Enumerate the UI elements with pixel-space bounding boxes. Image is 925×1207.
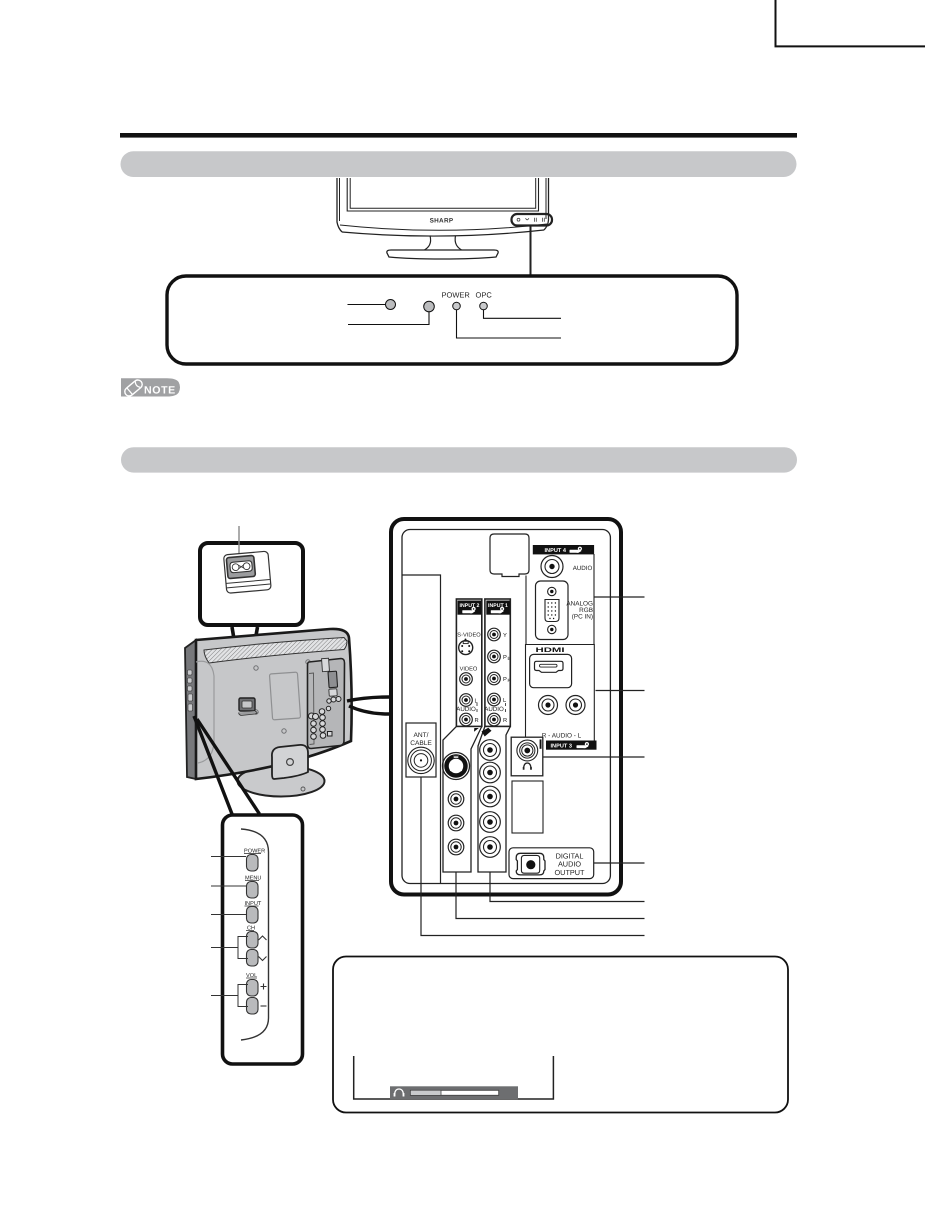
svg-text:ANT/: ANT/ [413, 732, 428, 739]
svg-text:INPUT 4: INPUT 4 [545, 548, 567, 554]
svg-text:HDMI: HDMI [536, 647, 565, 654]
svg-text:P: P [503, 655, 507, 661]
svg-text:OPC: OPC [476, 291, 493, 300]
svg-text:Y: Y [503, 633, 507, 639]
svg-text:B: B [508, 656, 511, 661]
svg-text:AUDIO: AUDIO [484, 706, 504, 713]
svg-text:S-VIDEO: S-VIDEO [457, 633, 481, 639]
svg-text:INPUT 1: INPUT 1 [488, 603, 508, 609]
svg-text:P: P [503, 677, 507, 683]
svg-text:CABLE: CABLE [410, 740, 432, 747]
svg-text:AUDIO: AUDIO [573, 565, 593, 572]
svg-text:SHARP: SHARP [430, 217, 454, 224]
svg-text:VIDEO: VIDEO [460, 667, 478, 673]
svg-text:R: R [503, 718, 507, 724]
svg-text:R: R [475, 718, 479, 724]
svg-text:POWER: POWER [442, 291, 471, 300]
svg-text:AUDIO: AUDIO [456, 706, 476, 713]
svg-text:OUTPUT: OUTPUT [555, 868, 586, 877]
svg-text:R - AUDIO - L: R - AUDIO - L [542, 733, 582, 740]
svg-text:NOTE: NOTE [144, 384, 176, 396]
svg-text:(PC IN): (PC IN) [572, 614, 593, 621]
svg-text:INPUT 3: INPUT 3 [551, 743, 572, 749]
svg-text:INPUT 2: INPUT 2 [460, 603, 480, 609]
